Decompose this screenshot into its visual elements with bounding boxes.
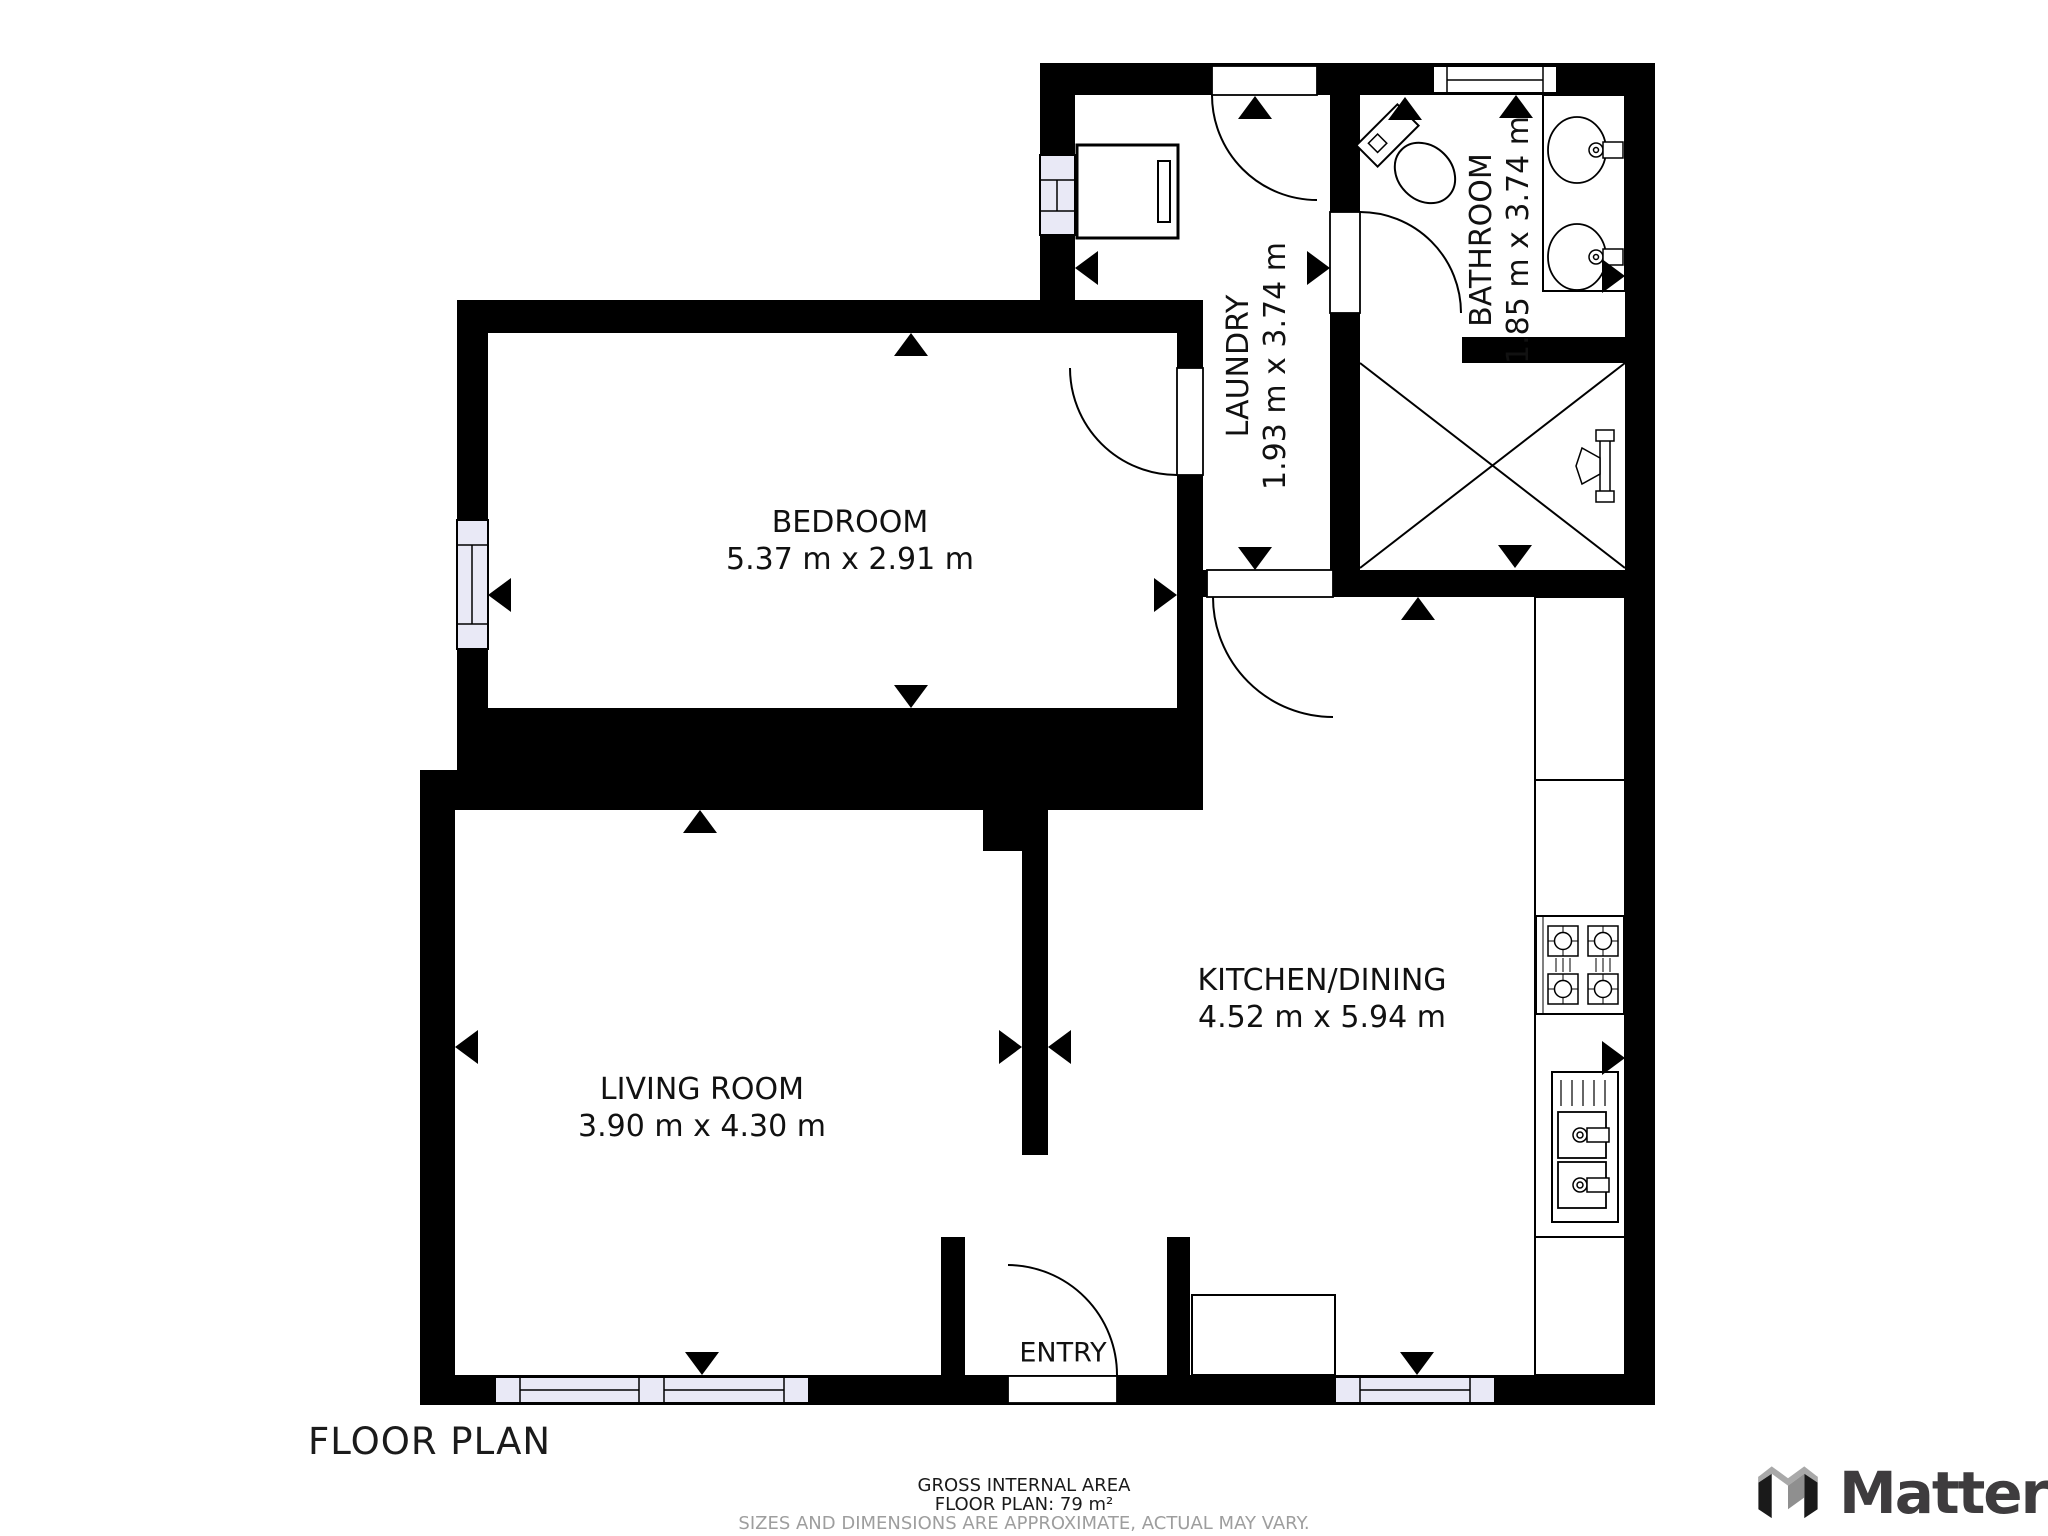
room-dims: 1.93 m x 3.74 m [1257, 242, 1294, 490]
cooktop-icon [1536, 916, 1624, 1014]
room-name: BEDROOM [726, 504, 974, 541]
room-dims: 1.85 m x 3.74 m [1500, 116, 1537, 364]
wall-segment [1022, 851, 1048, 1155]
floor-plan-page: BEDROOM 5.37 m x 2.91 m LAUNDRY 1.93 m x… [0, 0, 2048, 1536]
room-name: LIVING ROOM [578, 1071, 826, 1108]
bathroom-vanity-sinks-icon [1543, 95, 1625, 291]
room-dims: 5.37 m x 2.91 m [726, 541, 974, 578]
door-arc [1212, 95, 1317, 200]
direction-marker [1075, 251, 1098, 285]
direction-marker [1498, 545, 1532, 568]
room-dims: 3.90 m x 4.30 m [578, 1108, 826, 1145]
matterport-logo-icon [1751, 1456, 1825, 1530]
direction-marker [1048, 1030, 1071, 1064]
direction-marker [999, 1030, 1022, 1064]
wall-segment [1177, 333, 1203, 810]
wall-segment [1625, 63, 1655, 1405]
room-name: KITCHEN/DINING [1197, 962, 1446, 999]
wall-segment [420, 770, 455, 1405]
wall-segment [420, 770, 488, 810]
direction-marker [1238, 547, 1272, 570]
footer-floor-plan-area: FLOOR PLAN: 79 m² [0, 1495, 2048, 1514]
page-title: FLOOR PLAN [308, 1420, 551, 1463]
door-arc [1213, 597, 1333, 717]
direction-marker [1499, 95, 1533, 118]
door-arc [1070, 368, 1177, 475]
direction-marker [894, 333, 928, 356]
room-label-kitchen-dining: KITCHEN/DINING 4.52 m x 5.94 m [1197, 962, 1446, 1036]
room-label-laundry: LAUNDRY 1.93 m x 3.74 m [1220, 242, 1294, 490]
door-arc [1360, 212, 1461, 313]
direction-marker [683, 810, 717, 833]
direction-marker [455, 1030, 478, 1064]
matterport-logo: Matterpo [1751, 1456, 2048, 1530]
direction-marker [1401, 597, 1435, 620]
kitchen-sink-icon [1552, 1072, 1618, 1222]
wall-segment [941, 1237, 965, 1377]
direction-marker [1307, 251, 1330, 285]
wall-segment [1203, 570, 1655, 597]
room-label-entry: ENTRY [1019, 1338, 1106, 1369]
room-name: LAUNDRY [1220, 242, 1257, 490]
wall-segment [1040, 63, 1075, 310]
kitchen-counter [1535, 597, 1625, 1375]
direction-marker [1400, 1352, 1434, 1375]
direction-marker [1602, 1041, 1625, 1075]
wall-segment [457, 708, 1203, 810]
wall-segment [457, 300, 1203, 333]
direction-marker [488, 578, 511, 612]
direction-marker [894, 685, 928, 708]
wall-segment [983, 810, 1048, 851]
room-name: BATHROOM [1463, 116, 1500, 364]
washer-icon [1077, 145, 1178, 238]
wall-segment [1167, 1237, 1190, 1377]
room-label-living-room: LIVING ROOM 3.90 m x 4.30 m [578, 1071, 826, 1145]
footer-gross-internal-area: GROSS INTERNAL AREA [0, 1476, 2048, 1495]
wall-segment [1330, 63, 1360, 597]
direction-marker [1602, 259, 1625, 293]
footer-disclaimer: SIZES AND DIMENSIONS ARE APPROXIMATE, AC… [0, 1514, 2048, 1533]
room-label-bathroom: BATHROOM 1.85 m x 3.74 m [1463, 116, 1537, 364]
direction-marker [685, 1352, 719, 1375]
wall-segment [420, 1375, 1655, 1405]
direction-marker [1388, 97, 1422, 120]
room-dims: 4.52 m x 5.94 m [1197, 999, 1446, 1036]
entry-cabinet [1192, 1295, 1335, 1375]
room-label-bedroom: BEDROOM 5.37 m x 2.91 m [726, 504, 974, 578]
shower-icon [1360, 363, 1625, 568]
direction-marker [1154, 578, 1177, 612]
footer: GROSS INTERNAL AREA FLOOR PLAN: 79 m² SI… [0, 1476, 2048, 1533]
matterport-wordmark: Matterpo [1839, 1459, 2048, 1527]
toilet-icon [1356, 104, 1468, 216]
direction-marker [1238, 96, 1272, 119]
